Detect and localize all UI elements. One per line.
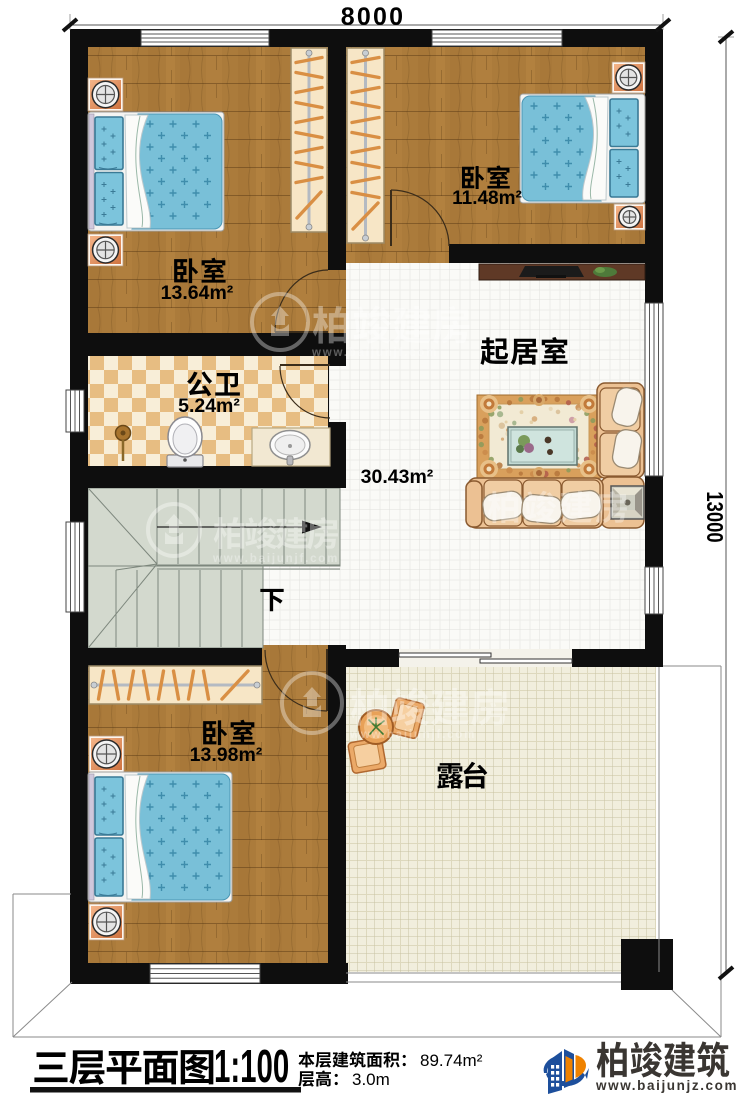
svg-text:13.64m²: 13.64m² — [161, 282, 234, 304]
svg-text:89.74m²: 89.74m² — [420, 1051, 483, 1070]
svg-text:www.baijunjf.com: www.baijunjf.com — [311, 347, 438, 359]
svg-text:30.43m²: 30.43m² — [361, 466, 434, 488]
svg-text:13.98m²: 13.98m² — [190, 744, 263, 766]
svg-text:5.24m²: 5.24m² — [178, 395, 240, 417]
svg-text:3.0m: 3.0m — [352, 1070, 390, 1089]
svg-text:www.baijunjz.com: www.baijunjz.com — [595, 1078, 738, 1093]
svg-text:1:100: 1:100 — [214, 1042, 289, 1093]
svg-text:11.48m²: 11.48m² — [452, 188, 522, 209]
svg-text:www.baijunjf.com: www.baijunjf.com — [212, 553, 339, 565]
svg-text:13000: 13000 — [701, 491, 726, 542]
svg-text:www.baijunjf.com: www.baijunjf.com — [349, 729, 476, 741]
svg-text:8000: 8000 — [341, 3, 405, 31]
